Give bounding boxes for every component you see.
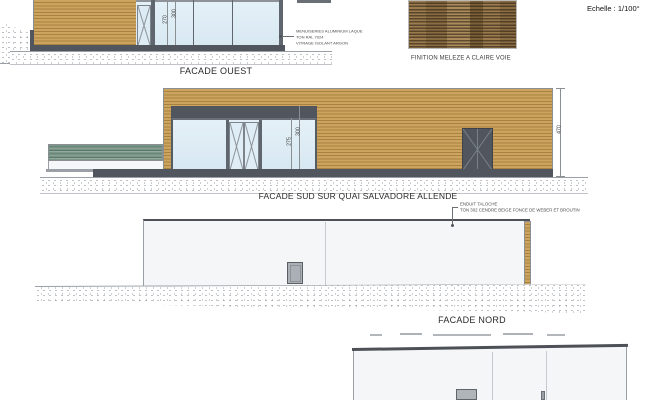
- sud-low-wall-body: [48, 161, 163, 169]
- sud-dim-275: 275: [287, 137, 293, 146]
- wood-sample-photo: [408, 0, 517, 49]
- est-facade-joint-2: [546, 351, 547, 400]
- sud-dim-line-2: [299, 106, 300, 171]
- ouest-annotation-line2: TON RAL 7024: [296, 35, 363, 40]
- door-x-glyph: [463, 129, 492, 170]
- est-door-edge: [541, 391, 545, 400]
- dim-mark: [400, 333, 422, 335]
- nord-annotation-line1: ENDUIT TALOCHE: [460, 202, 580, 208]
- ouest-annotation-dot: [279, 35, 282, 38]
- sud-double-door-leaf-left: [229, 122, 244, 171]
- ouest-mullion-1: [193, 0, 194, 47]
- ouest-mullion-2: [232, 0, 233, 47]
- ouest-ground-band: [10, 51, 332, 65]
- ouest-frame-right: [279, 0, 283, 47]
- ouest-glazing: [136, 0, 283, 49]
- facade-ouest-title: FACADE OUEST: [180, 66, 253, 76]
- est-building: [353, 343, 627, 400]
- nord-annotation: ENDUIT TALOCHE TON 302 CENDRE BEIGE FONC…: [460, 202, 650, 218]
- sud-double-door-leaf-right: [244, 122, 259, 171]
- facade-sud-title: FACADE SUD SUR QUAI SALVADORE ALLENDE: [259, 191, 458, 201]
- ouest-wood-cladding: [33, 0, 137, 47]
- est-facade-joint-1: [492, 352, 493, 400]
- ouest-annotation-line3: VITRAGE ISOLANT ARGON: [296, 41, 363, 46]
- nord-window-frame: [290, 265, 301, 282]
- wood-sample-caption: FINITION MELEZE A CLAIRE VOIE: [411, 55, 511, 61]
- ouest-annotation-line1: MENUISERIES ALUMINIUM LAQUE: [296, 29, 363, 34]
- sud-dim-470: 470: [557, 125, 563, 134]
- ouest-entry-door: [137, 5, 151, 46]
- sud-base-band: [93, 169, 553, 177]
- door-x-glyph: [230, 123, 243, 170]
- door-x-glyph: [245, 123, 258, 170]
- est-dim-marks: [365, 333, 595, 337]
- nord-window: [287, 262, 303, 284]
- cutoff-annotation-fragment: [297, 0, 331, 3]
- ouest-annotation: MENUISERIES ALUMINIUM LAQUE TON RAL 7024…: [296, 29, 411, 50]
- nord-facade-joint: [325, 222, 326, 285]
- sud-door-frame-right: [259, 120, 262, 171]
- ouest-dim-270: 270: [163, 15, 169, 24]
- sud-parapet-band: [171, 106, 317, 118]
- nord-annotation-arrow: [451, 224, 454, 227]
- dim-mark: [433, 334, 491, 336]
- facade-nord-title: FACADE NORD: [438, 315, 506, 325]
- sud-base-thin: [46, 169, 93, 172]
- dim-mark: [547, 334, 565, 336]
- sud-dim-300: 300: [296, 127, 302, 136]
- ouest-dim-300: 300: [172, 9, 178, 18]
- ouest-mullion-main: [151, 0, 155, 47]
- ouest-annotation-leader: [281, 36, 294, 37]
- door-x-glyph: [138, 6, 150, 45]
- dim-mark: [370, 334, 382, 336]
- scale-note: Echelle : 1/100°: [587, 4, 640, 13]
- sud-low-wall-coping: [48, 144, 163, 161]
- nord-wood-return-strip: [524, 221, 531, 286]
- elevation-sheet: 270 300 MENUISERIES ALUMINIUM LAQUE TON …: [0, 0, 650, 400]
- sud-service-door: [462, 128, 493, 171]
- dim-mark: [503, 333, 533, 335]
- sud-dim-tick-top: [556, 88, 565, 89]
- est-window: [456, 389, 477, 400]
- nord-ground-band: [35, 283, 586, 313]
- nord-building: [143, 219, 530, 286]
- nord-annotation-line2: TON 302 CENDRE BEIGE FONCE DE WEBER ET B…: [460, 208, 580, 214]
